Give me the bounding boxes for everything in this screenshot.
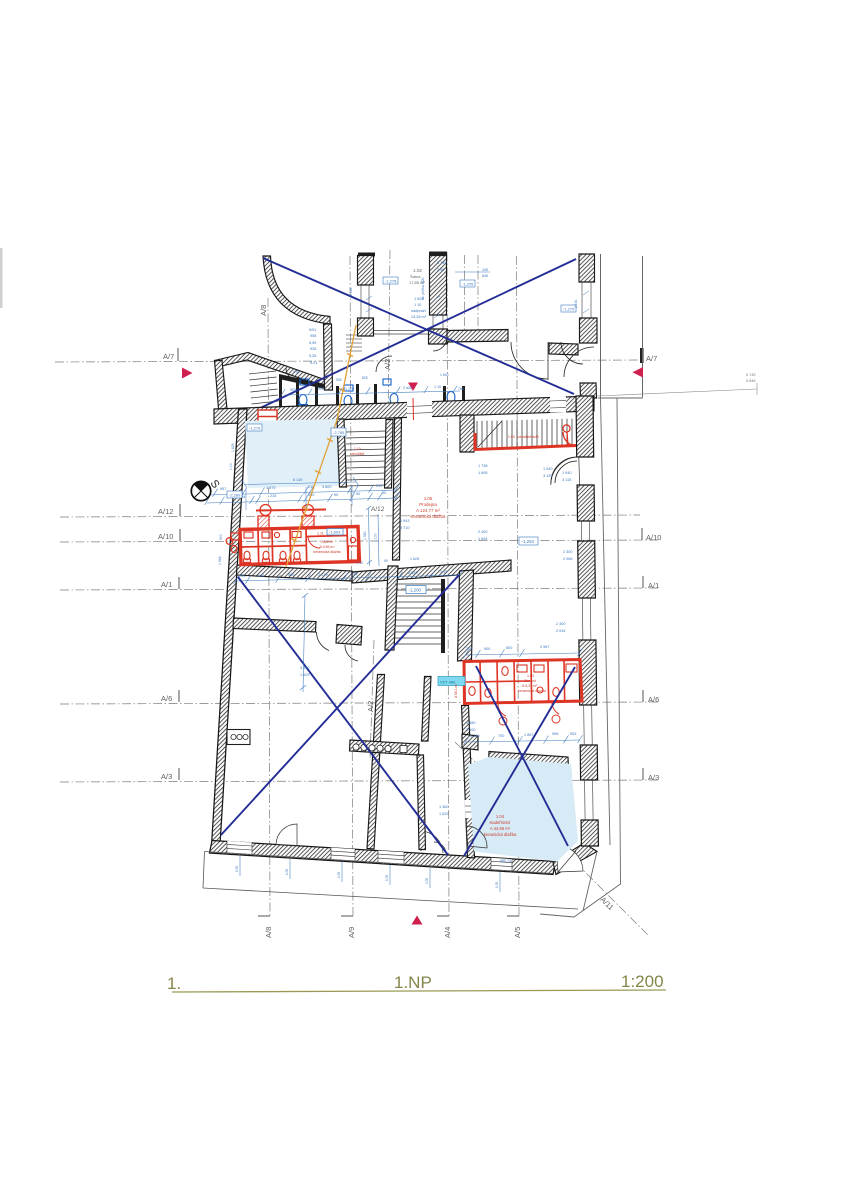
svg-text:5 745: 5 745 bbox=[746, 373, 756, 377]
svg-text:1 380: 1 380 bbox=[466, 721, 476, 725]
svg-text:345: 345 bbox=[482, 268, 488, 272]
svg-text:2 066: 2 066 bbox=[563, 557, 573, 561]
svg-text:928: 928 bbox=[310, 347, 316, 351]
svg-text:A/2: A/2 bbox=[383, 359, 392, 370]
svg-text:Keramická dlažba: Keramická dlažba bbox=[411, 514, 446, 519]
svg-text:1 05: 1 05 bbox=[385, 875, 389, 881]
svg-text:A 4,56 m²: A 4,56 m² bbox=[320, 545, 336, 549]
svg-text:schodiště dolů: schodiště dolů bbox=[517, 435, 539, 439]
svg-text:nadpraží: nadpraží bbox=[411, 309, 427, 313]
svg-text:2 161: 2 161 bbox=[574, 299, 578, 308]
svg-text:1 05: 1 05 bbox=[425, 878, 429, 884]
svg-text:680,73: 680,73 bbox=[500, 859, 511, 863]
svg-text:1.09: 1.09 bbox=[508, 435, 515, 439]
svg-text:1 15: 1 15 bbox=[434, 385, 441, 389]
svg-text:Kadeřnictví: Kadeřnictví bbox=[490, 820, 512, 825]
svg-text:13,28 m²: 13,28 m² bbox=[411, 315, 427, 319]
svg-text:1 05: 1 05 bbox=[337, 872, 341, 878]
svg-text:1 964: 1 964 bbox=[218, 556, 222, 565]
svg-text:5/51: 5/51 bbox=[309, 328, 316, 332]
svg-text:5 745: 5 745 bbox=[437, 261, 447, 265]
svg-text:6 115: 6 115 bbox=[293, 478, 302, 482]
svg-text:1.NP: 1.NP bbox=[394, 973, 432, 992]
svg-text:A/8: A/8 bbox=[259, 305, 268, 316]
svg-text:2 400: 2 400 bbox=[556, 622, 566, 626]
svg-text:A/10: A/10 bbox=[646, 533, 661, 542]
svg-text:A 58,1 m²: A 58,1 m² bbox=[454, 683, 458, 698]
svg-text:A/6: A/6 bbox=[648, 695, 659, 704]
svg-text:3 380: 3 380 bbox=[300, 666, 310, 670]
svg-text:A/9: A/9 bbox=[347, 927, 356, 938]
svg-text:1 940: 1 940 bbox=[543, 467, 553, 471]
svg-text:1 694: 1 694 bbox=[478, 537, 488, 541]
svg-text:2 46: 2 46 bbox=[437, 268, 444, 272]
svg-text:5,28: 5,28 bbox=[309, 354, 316, 358]
svg-text:1 738: 1 738 bbox=[478, 464, 488, 468]
svg-text:1 629: 1 629 bbox=[439, 812, 449, 816]
svg-text:Zázemí: Zázemí bbox=[524, 679, 536, 683]
svg-text:553: 553 bbox=[570, 732, 576, 736]
svg-text:1 940: 1 940 bbox=[562, 471, 572, 475]
svg-text:A/2: A/2 bbox=[366, 701, 375, 712]
svg-text:-2,785: -2,785 bbox=[333, 430, 345, 435]
svg-text:-1,205: -1,205 bbox=[462, 282, 474, 287]
svg-text:1 600: 1 600 bbox=[440, 373, 449, 377]
svg-text:A/7: A/7 bbox=[163, 352, 174, 361]
svg-text:957: 957 bbox=[220, 487, 226, 491]
svg-text:3 115: 3 115 bbox=[562, 478, 571, 482]
svg-text:900: 900 bbox=[318, 387, 324, 391]
svg-text:1.: 1. bbox=[167, 974, 181, 993]
svg-text:900: 900 bbox=[484, 647, 490, 651]
svg-text:A/3: A/3 bbox=[648, 773, 659, 782]
svg-text:2 967: 2 967 bbox=[540, 645, 550, 649]
svg-text:900: 900 bbox=[219, 534, 223, 540]
svg-text:A/8: A/8 bbox=[264, 927, 273, 938]
svg-text:A 124,77 m²: A 124,77 m² bbox=[416, 508, 440, 513]
svg-text:Zázemí: Zázemí bbox=[321, 540, 333, 544]
svg-text:900: 900 bbox=[288, 573, 294, 577]
svg-text:900: 900 bbox=[336, 378, 342, 382]
svg-text:2 620: 2 620 bbox=[408, 571, 418, 575]
svg-text:A/4: A/4 bbox=[443, 927, 452, 938]
svg-text:-2,289: -2,289 bbox=[229, 493, 241, 498]
svg-text:200: 200 bbox=[239, 574, 245, 578]
svg-text:1 50: 1 50 bbox=[293, 370, 300, 374]
svg-text:A/12: A/12 bbox=[371, 506, 385, 513]
svg-text:1 05: 1 05 bbox=[235, 866, 239, 872]
svg-text:3 800: 3 800 bbox=[322, 485, 332, 489]
svg-text:1.10: 1.10 bbox=[354, 447, 361, 451]
svg-text:Šatna: Šatna bbox=[410, 274, 421, 279]
svg-text:215: 215 bbox=[270, 494, 276, 498]
svg-text:1 179: 1 179 bbox=[345, 387, 354, 391]
svg-text:1 629: 1 629 bbox=[231, 443, 235, 452]
svg-text:1 100: 1 100 bbox=[374, 533, 378, 542]
svg-text:A/6: A/6 bbox=[161, 694, 172, 703]
svg-text:90: 90 bbox=[356, 492, 360, 496]
svg-text:keramická dlažba: keramická dlažba bbox=[313, 550, 340, 554]
svg-text:5 710: 5 710 bbox=[400, 526, 410, 530]
svg-text:A/3: A/3 bbox=[161, 772, 172, 781]
svg-text:1 879: 1 879 bbox=[266, 486, 276, 490]
svg-text:1 580: 1 580 bbox=[363, 531, 367, 540]
svg-text:ak. příčka SDK: ak. příčka SDK bbox=[421, 277, 425, 300]
svg-text:A/7: A/7 bbox=[646, 354, 657, 363]
svg-text:schodiště: schodiště bbox=[350, 452, 364, 456]
svg-text:1 629: 1 629 bbox=[300, 673, 310, 677]
svg-text:900: 900 bbox=[258, 574, 264, 578]
svg-text:1.11: 1.11 bbox=[317, 532, 324, 536]
svg-text:1 360: 1 360 bbox=[439, 805, 449, 809]
svg-text:800: 800 bbox=[506, 646, 512, 650]
svg-text:A/12: A/12 bbox=[158, 507, 173, 516]
svg-text:2 044: 2 044 bbox=[556, 629, 566, 633]
svg-text:2 a26: 2 a26 bbox=[403, 386, 412, 390]
svg-text:5 846: 5 846 bbox=[746, 379, 756, 383]
svg-text:2 400: 2 400 bbox=[478, 530, 488, 534]
svg-text:3 100: 3 100 bbox=[466, 728, 476, 732]
svg-text:-1,278: -1,278 bbox=[249, 426, 261, 431]
svg-text:A/1: A/1 bbox=[161, 580, 172, 589]
svg-text:-1,693: -1,693 bbox=[329, 530, 341, 535]
svg-text:1 05: 1 05 bbox=[285, 869, 289, 875]
svg-text:90: 90 bbox=[384, 559, 388, 563]
svg-text:-1,200: -1,200 bbox=[409, 588, 422, 593]
svg-text:1 179: 1 179 bbox=[318, 573, 328, 577]
svg-text:2 300: 2 300 bbox=[563, 550, 573, 554]
svg-text:1 05: 1 05 bbox=[495, 882, 499, 888]
svg-text:keramická dlažba: keramická dlažba bbox=[484, 832, 517, 837]
svg-text:1 10: 1 10 bbox=[356, 561, 363, 565]
svg-text:1 330: 1 330 bbox=[470, 734, 480, 738]
svg-text:1 857: 1 857 bbox=[524, 733, 534, 737]
svg-text:760: 760 bbox=[458, 387, 464, 391]
svg-text:A 44,96 m²: A 44,96 m² bbox=[490, 826, 511, 831]
svg-text:A/10: A/10 bbox=[158, 532, 173, 541]
svg-text:90: 90 bbox=[382, 491, 386, 495]
svg-text:A/1: A/1 bbox=[648, 581, 659, 590]
svg-text:A 5,33 m²: A 5,33 m² bbox=[522, 684, 538, 688]
svg-text:1 10: 1 10 bbox=[414, 303, 421, 307]
svg-text:900: 900 bbox=[290, 388, 296, 392]
svg-text:1 10: 1 10 bbox=[229, 463, 233, 470]
svg-text:846: 846 bbox=[482, 274, 488, 278]
svg-text:5,01: 5,01 bbox=[310, 361, 317, 365]
svg-text:825: 825 bbox=[362, 376, 368, 380]
svg-text:1.04: 1.04 bbox=[496, 814, 505, 819]
svg-text:1.05: 1.05 bbox=[424, 496, 433, 501]
svg-text:-1,278: -1,278 bbox=[385, 279, 397, 284]
svg-text:90: 90 bbox=[334, 493, 338, 497]
svg-text:200: 200 bbox=[466, 647, 472, 651]
svg-text:1.03: 1.03 bbox=[527, 674, 534, 678]
svg-text:1 695: 1 695 bbox=[478, 471, 488, 475]
svg-text:906: 906 bbox=[552, 732, 558, 736]
svg-text:-1,253: -1,253 bbox=[522, 539, 535, 544]
svg-text:215: 215 bbox=[376, 484, 382, 488]
svg-text:908: 908 bbox=[310, 334, 316, 338]
svg-text:5,59: 5,59 bbox=[309, 341, 316, 345]
svg-text:1 15: 1 15 bbox=[440, 570, 447, 574]
svg-text:1 943: 1 943 bbox=[400, 519, 410, 523]
svg-text:Prodejna: Prodejna bbox=[419, 502, 437, 507]
svg-text:2 161: 2 161 bbox=[349, 287, 353, 296]
svg-text:1 90: 1 90 bbox=[350, 572, 357, 576]
svg-text:1.02: 1.02 bbox=[413, 268, 422, 273]
svg-text:A/5: A/5 bbox=[513, 927, 522, 938]
svg-text:1:200: 1:200 bbox=[621, 972, 664, 991]
svg-text:1 628: 1 628 bbox=[410, 557, 419, 561]
svg-text:700: 700 bbox=[498, 734, 504, 738]
svg-text:3 125: 3 125 bbox=[543, 474, 553, 478]
svg-text:keramická dlažba: keramická dlažba bbox=[518, 689, 546, 693]
